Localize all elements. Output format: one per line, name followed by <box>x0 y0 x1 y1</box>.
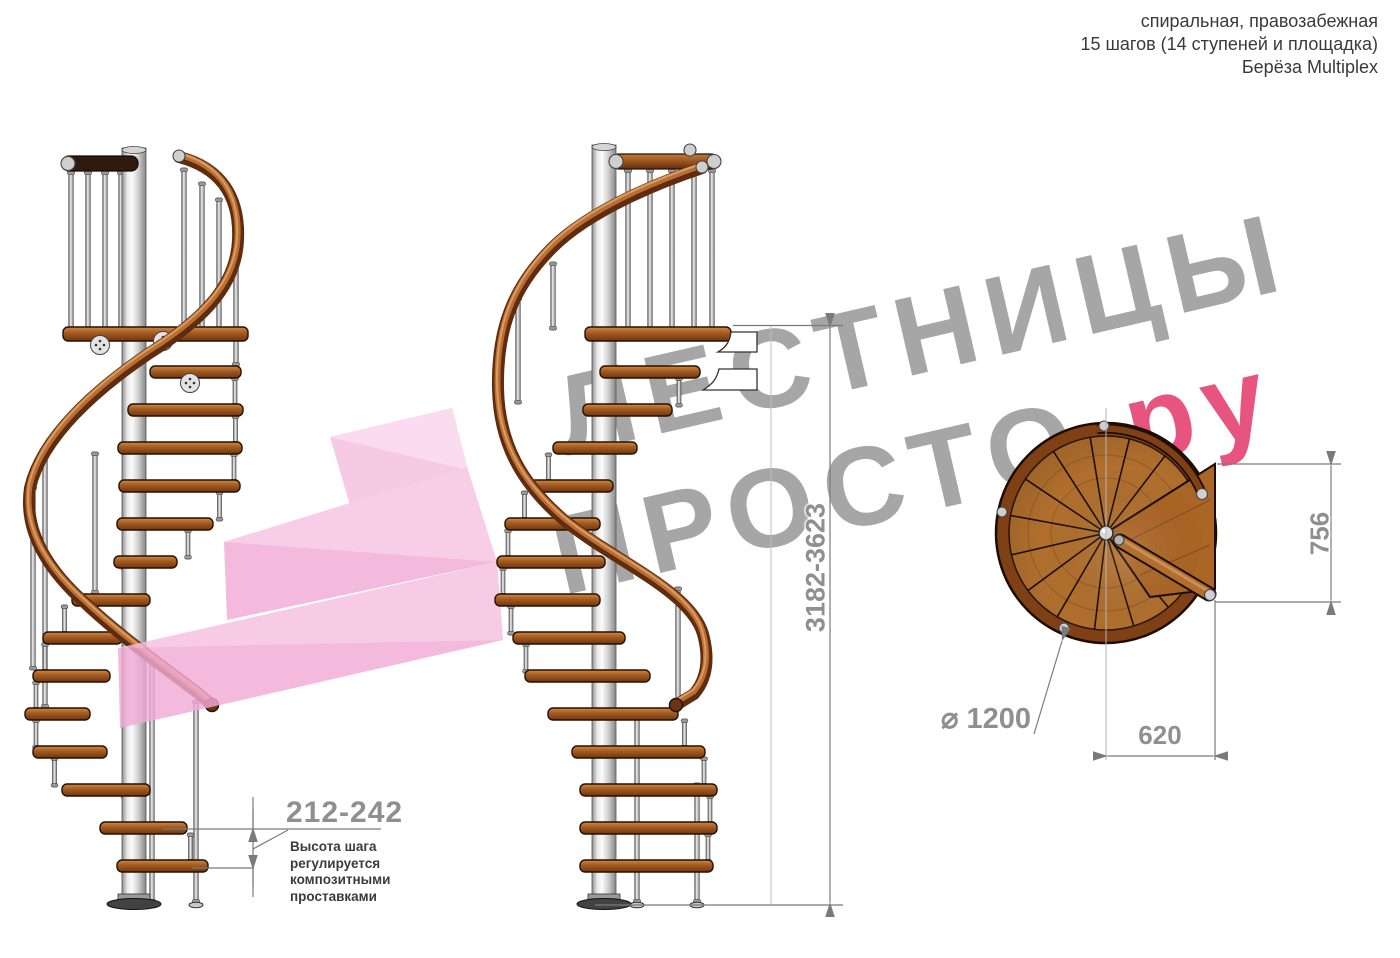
drawing-canvas: ЛЕСТНИЦЫ ПРОСТО.ру <box>0 0 1400 958</box>
dim-step-height-label: 212-242 <box>286 796 403 830</box>
note-line: композитными <box>290 872 390 889</box>
left-staircase-elevation <box>25 147 248 910</box>
step-height-note: Высота шага регулируется композитными пр… <box>290 839 390 905</box>
note-line: проставками <box>290 889 390 906</box>
dim-diameter-label: ⌀ 1200 <box>941 701 1031 736</box>
spec-line-material: Берёза Multiplex <box>1080 56 1378 79</box>
title-block: спиральная, правозабежная 15 шагов (14 с… <box>1080 10 1378 79</box>
note-line: регулируется <box>290 856 390 873</box>
dim-landing-depth-label: 756 <box>1305 484 1336 584</box>
dim-total-height-label: 3182-3623 <box>801 484 832 652</box>
dim-landing-width-label: 620 <box>1110 720 1210 751</box>
note-line: Высота шага <box>290 839 390 856</box>
spec-line-steps: 15 шагов (14 ступеней и площадка) <box>1080 33 1378 56</box>
dim-diameter-leader <box>1034 641 1062 734</box>
pink-logo-arrow <box>118 408 503 728</box>
spec-line-type: спиральная, правозабежная <box>1080 10 1378 33</box>
